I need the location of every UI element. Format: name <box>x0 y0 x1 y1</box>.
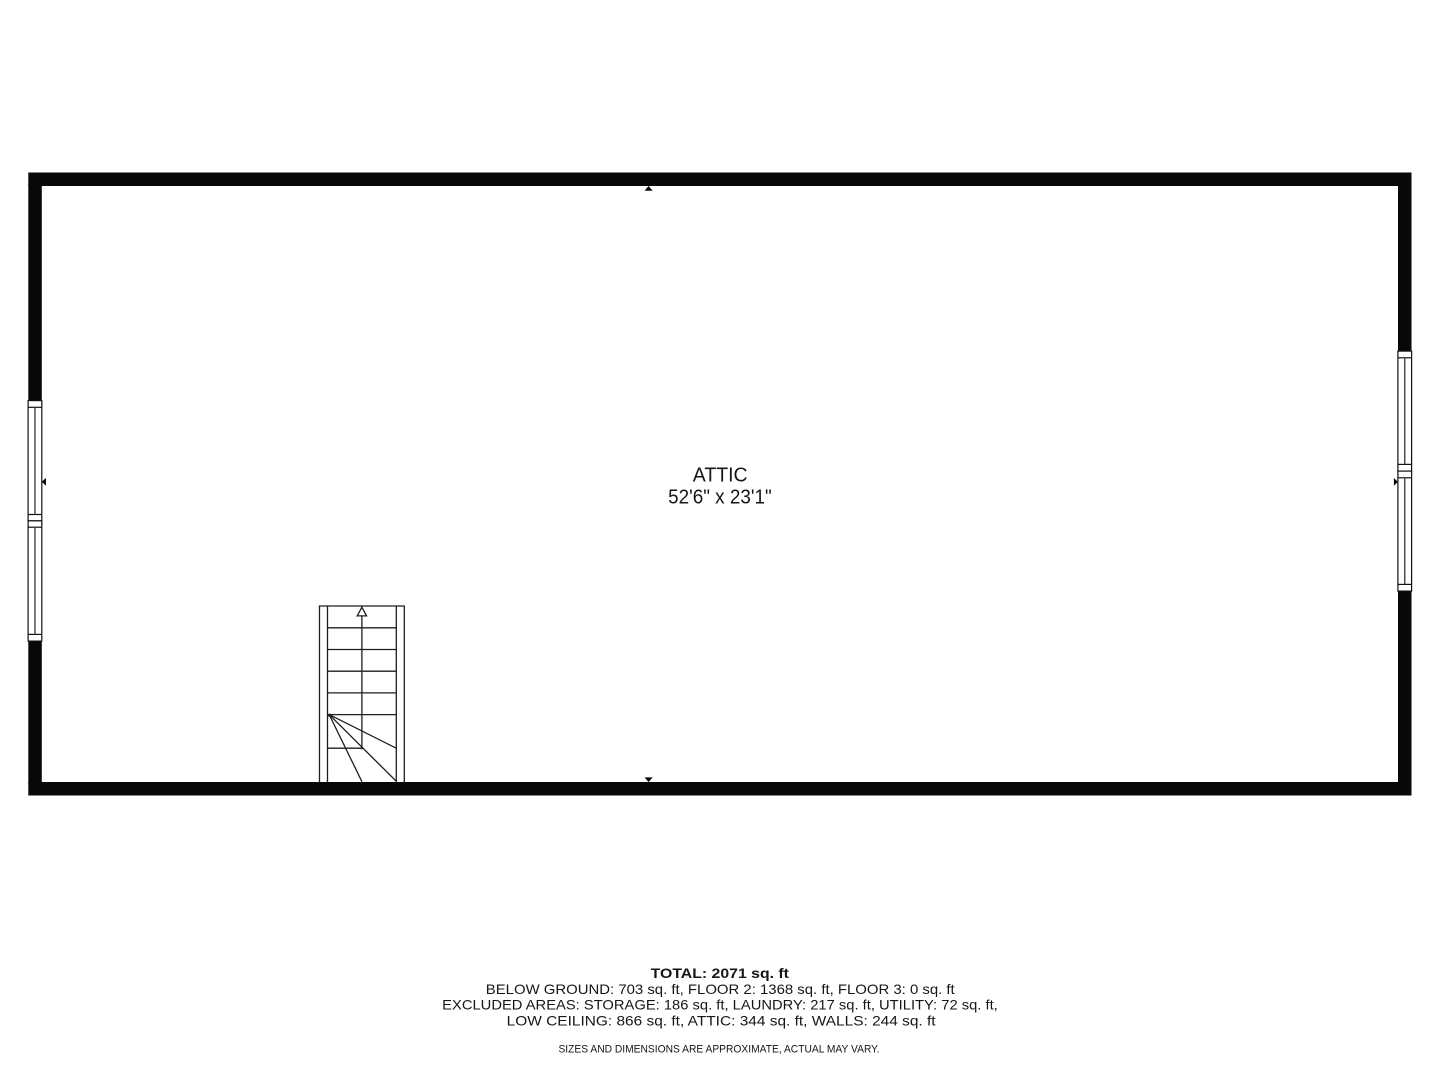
svg-text:TOTAL: 2071 sq. ft: TOTAL: 2071 sq. ft <box>651 966 790 981</box>
svg-text:SIZES AND DIMENSIONS ARE APPRO: SIZES AND DIMENSIONS ARE APPROXIMATE, AC… <box>558 1043 879 1055</box>
svg-text:LOW CEILING: 866 sq. ft, ATTIC: LOW CEILING: 866 sq. ft, ATTIC: 344 sq. … <box>507 1014 936 1029</box>
svg-text:BELOW GROUND: 703 sq. ft, FLOO: BELOW GROUND: 703 sq. ft, FLOOR 2: 1368 … <box>486 982 955 997</box>
svg-text:ATTIC: ATTIC <box>693 464 748 486</box>
svg-text:52'6" x 23'1": 52'6" x 23'1" <box>668 486 772 508</box>
svg-text:EXCLUDED AREAS: STORAGE: 186 s: EXCLUDED AREAS: STORAGE: 186 sq. ft, LAU… <box>442 998 998 1013</box>
